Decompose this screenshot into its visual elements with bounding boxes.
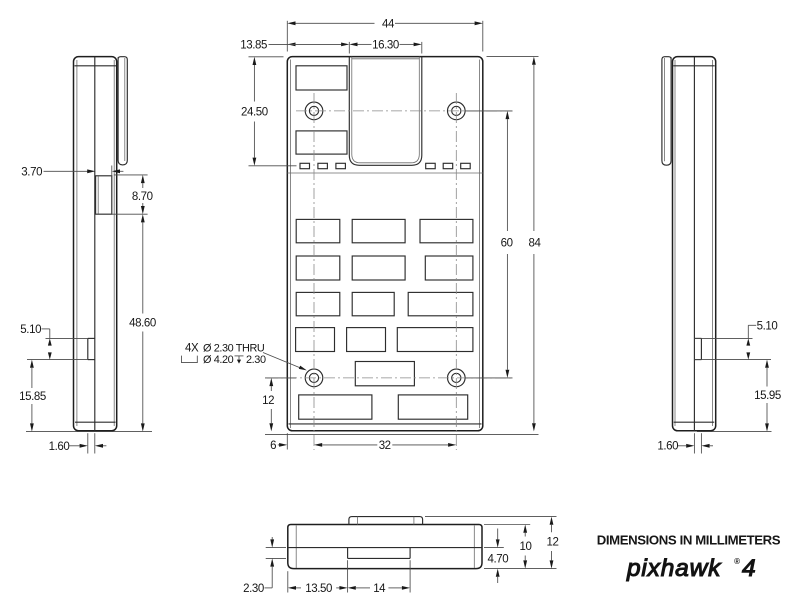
svg-text:10: 10 — [520, 541, 532, 553]
svg-text:5.10: 5.10 — [757, 320, 778, 332]
svg-text:32: 32 — [379, 440, 391, 452]
svg-text:1.60: 1.60 — [49, 441, 70, 453]
svg-text:13.50: 13.50 — [305, 583, 332, 595]
svg-text:12: 12 — [262, 395, 274, 407]
svg-text:Ø 4.20: Ø 4.20 — [203, 354, 234, 366]
svg-text:3.70: 3.70 — [21, 166, 42, 178]
svg-text:15.95: 15.95 — [754, 390, 781, 402]
svg-text:4X: 4X — [185, 343, 199, 355]
svg-text:24.50: 24.50 — [241, 107, 268, 119]
svg-text:2.30: 2.30 — [243, 583, 264, 595]
svg-text:2.30: 2.30 — [246, 354, 266, 366]
svg-text:®: ® — [734, 557, 740, 566]
svg-text:60: 60 — [501, 238, 513, 250]
svg-text:15.85: 15.85 — [19, 391, 46, 403]
svg-text:48.60: 48.60 — [129, 317, 156, 329]
svg-text:1.60: 1.60 — [657, 440, 678, 452]
svg-text:DIMENSIONS IN MILLIMETERS: DIMENSIONS IN MILLIMETERS — [597, 533, 781, 548]
svg-text:8.70: 8.70 — [132, 191, 153, 203]
svg-text:12: 12 — [547, 537, 559, 549]
svg-text:13.85: 13.85 — [240, 40, 267, 52]
svg-text:6: 6 — [270, 440, 276, 452]
svg-text:4: 4 — [742, 555, 756, 582]
svg-text:84: 84 — [529, 238, 542, 250]
svg-text:44: 44 — [382, 18, 395, 30]
svg-text:14: 14 — [373, 583, 386, 595]
svg-text:16.30: 16.30 — [372, 40, 399, 52]
svg-text:Ø 2.30 THRU: Ø 2.30 THRU — [203, 343, 265, 355]
svg-text:5.10: 5.10 — [20, 324, 41, 336]
svg-text:4.70: 4.70 — [488, 553, 509, 565]
svg-text:pixhawk: pixhawk — [626, 555, 722, 582]
